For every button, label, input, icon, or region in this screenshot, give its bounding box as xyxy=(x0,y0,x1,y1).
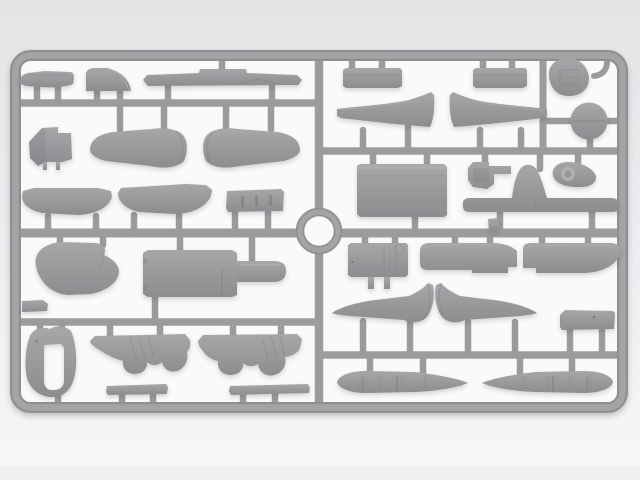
part-slotted-plate xyxy=(226,189,284,212)
part-small-block xyxy=(488,218,499,231)
sprue-photo xyxy=(0,0,640,480)
part-hatch-plate xyxy=(560,310,615,330)
part-cylinder xyxy=(237,261,286,282)
part-disc xyxy=(571,103,608,140)
part-ribbed-block xyxy=(357,164,447,217)
part-side-tab xyxy=(22,300,48,312)
part-panel-rect-1 xyxy=(343,68,402,88)
part-fuselage-sill xyxy=(20,71,74,87)
photo-stage xyxy=(0,0,640,480)
part-deck-1 xyxy=(420,243,517,273)
part-panel-rect-2 xyxy=(473,68,527,88)
floor-band xyxy=(0,466,640,480)
part-fuel-tank xyxy=(143,250,237,297)
